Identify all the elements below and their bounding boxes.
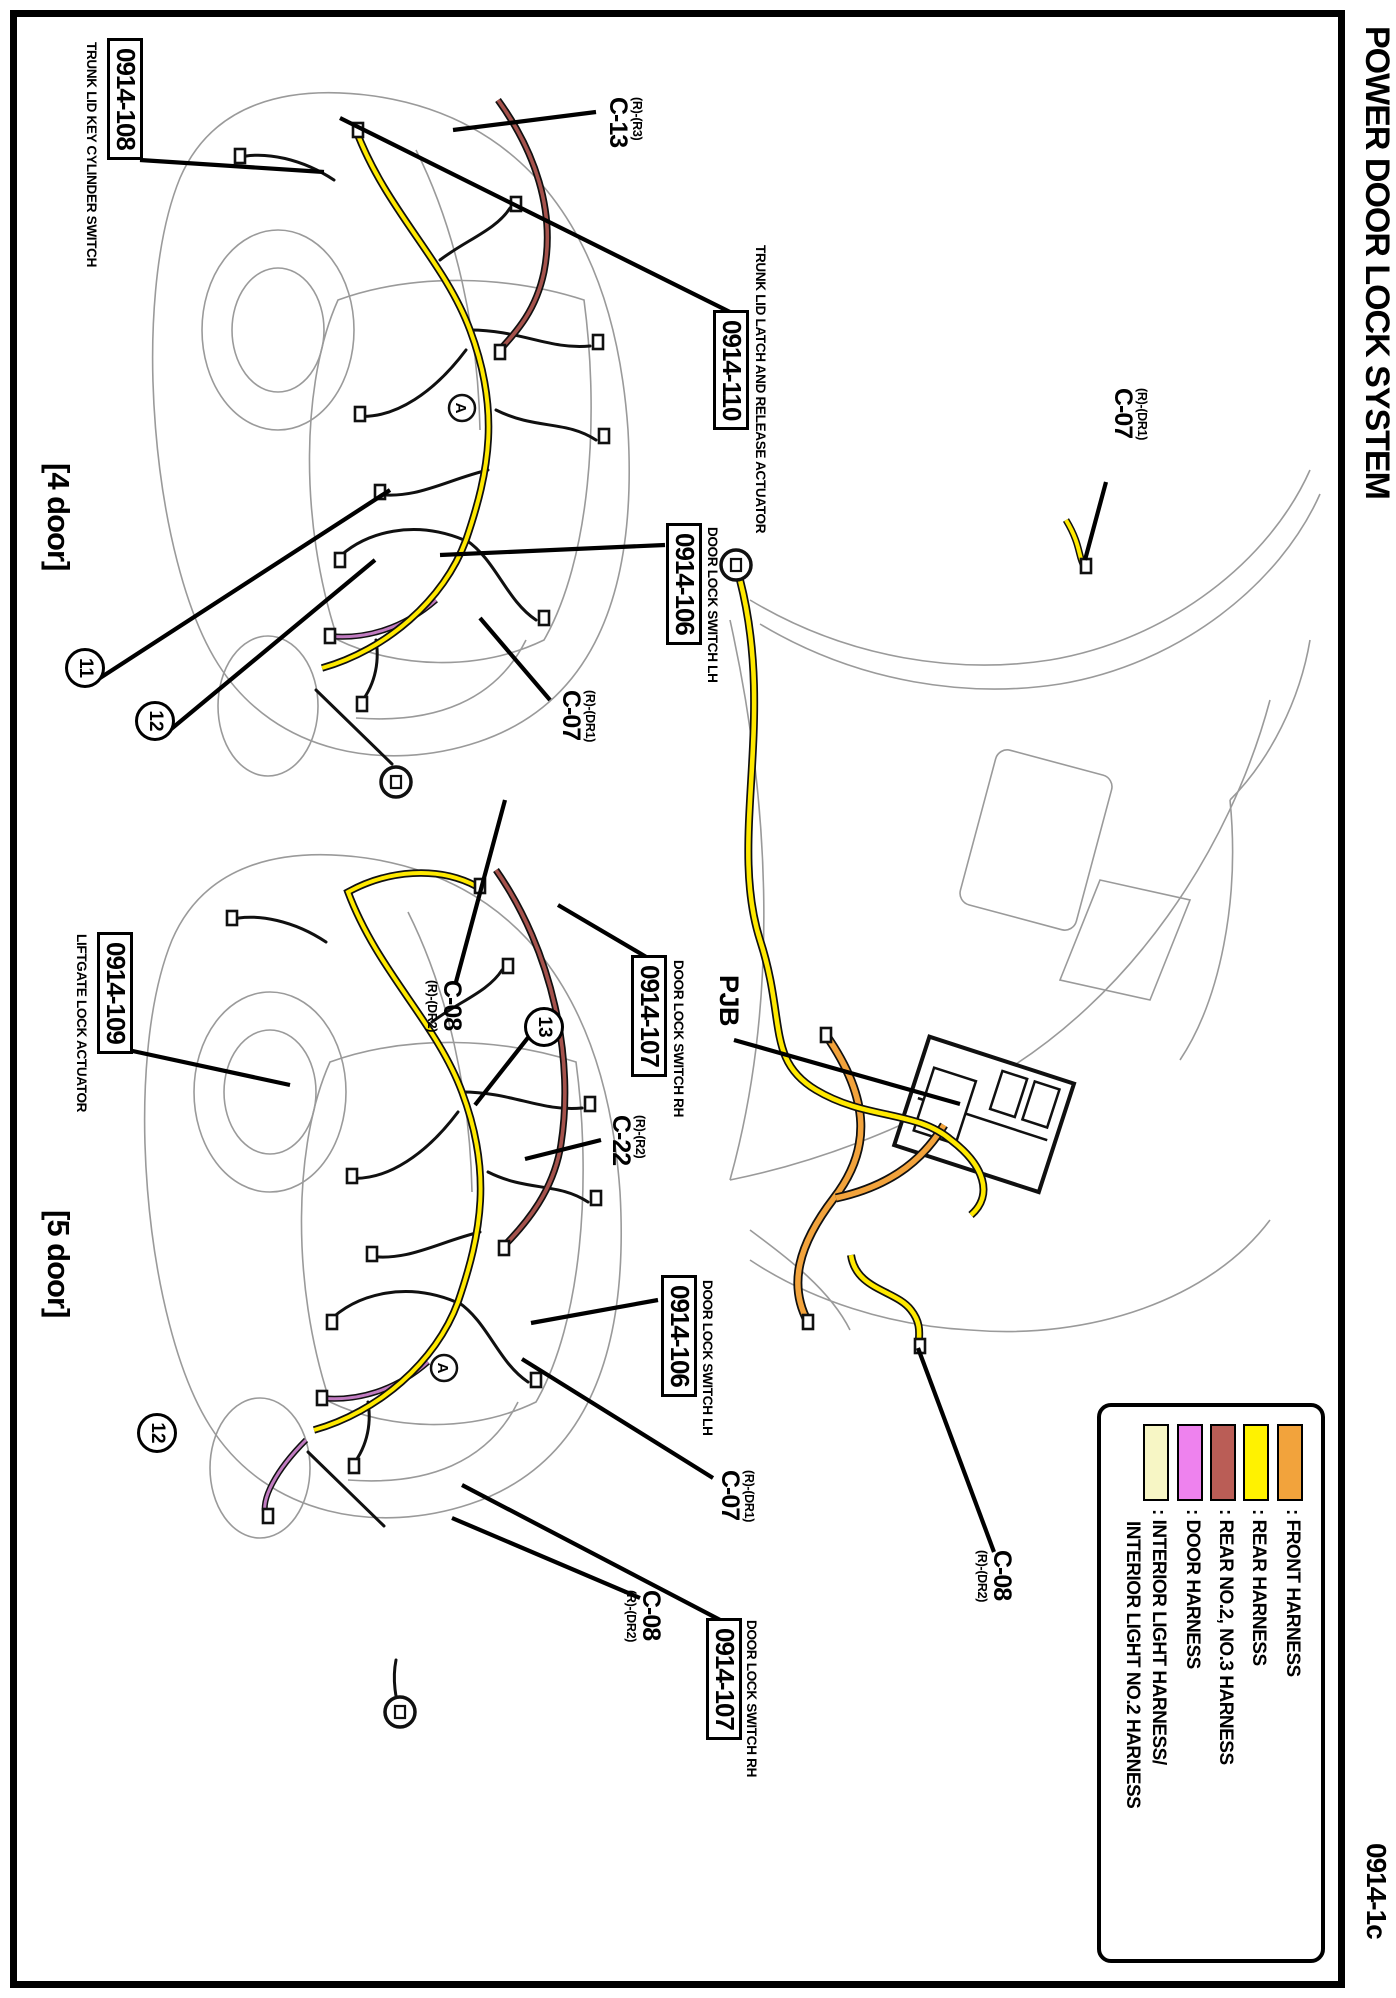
view-marker-a: A: [452, 403, 469, 414]
page-code: 0914-1c: [1360, 1843, 1392, 1939]
connector-prefix: (R)-(DR2): [976, 1550, 989, 1602]
circled-ref-12-4d: 12: [135, 701, 175, 741]
callout-desc-liftgate-lock: LIFTGATE LOCK ACTUATOR: [74, 934, 89, 1112]
legend: : FRONT HARNESS : REAR HARNESS : REAR NO…: [1097, 1403, 1325, 1963]
connector-prefix: (R)-(DR1): [584, 690, 597, 742]
car-5door-illustration: A: [145, 855, 622, 1727]
connector-label-c08-pjb: C-08 (R)-(DR2): [976, 1550, 1014, 1602]
legend-swatch-front: [1277, 1424, 1303, 1501]
callout-desc-door-lock-lh-5d: DOOR LOCK SWITCH LH: [700, 1280, 715, 1436]
connector-prefix: (R)-(DR1): [1136, 388, 1149, 440]
connector-code: C-07: [558, 690, 584, 742]
callout-desc-trunk-key-switch: TRUNK LID KEY CYLINDER SWITCH: [84, 42, 99, 267]
manual-page: POWER DOOR LOCK SYSTEM 0914-1c: [0, 0, 1396, 1998]
callout-box-trunk-latch: 0914-110: [713, 310, 749, 430]
legend-swatch-interior: [1143, 1424, 1169, 1501]
connector-prefix: (R)-(DR2): [625, 1590, 638, 1642]
connector-label-c07-5d: (R)-(DR1) C-07: [717, 1470, 755, 1522]
legend-swatch-door: [1177, 1424, 1203, 1501]
connector-label-c07-4d: (R)-(DR1) C-07: [558, 690, 596, 742]
connector-prefix: (R)-(R2): [634, 1115, 647, 1165]
legend-label-interior-line2: INTERIOR LIGHT NO.2 HARNESS: [1121, 1521, 1143, 1808]
circled-ref-12-5d: 12: [137, 1413, 177, 1453]
callout-box-trunk-key-switch: 0914-108: [107, 38, 143, 160]
callout-desc-door-lock-rh-4d: DOOR LOCK SWITCH RH: [671, 960, 686, 1117]
connector-label-c13: (R)-(R3) C-13: [605, 97, 643, 147]
legend-label-front: : FRONT HARNESS: [1281, 1509, 1303, 1677]
page-title: POWER DOOR LOCK SYSTEM: [1357, 26, 1396, 499]
connector-prefix: (R)-(R3): [631, 97, 644, 147]
connector-label-c22: (R)-(R2) C-22: [608, 1115, 646, 1165]
connector-code: C-07: [717, 1470, 743, 1522]
pjb-label: PJB: [713, 975, 744, 1026]
connector-code: C-08: [989, 1550, 1015, 1602]
rotated-landscape-page: POWER DOOR LOCK SYSTEM 0914-1c: [0, 0, 1396, 1998]
connector-prefix: (R)-(DR1): [743, 1470, 756, 1522]
legend-swatch-rear: [1243, 1424, 1269, 1501]
legend-swatch-rear23: [1210, 1424, 1236, 1501]
pjb-junction-box: [894, 1037, 1074, 1192]
connector-code: C-08: [439, 980, 465, 1032]
legend-label-rear: : REAR HARNESS: [1247, 1509, 1269, 1666]
connector-code: C-07: [1110, 388, 1136, 440]
connector-label-c08-4d: C-08 (R)-(DR2): [426, 980, 464, 1032]
callout-box-door-lock-lh-5d: 0914-106: [661, 1275, 697, 1397]
connector-label-c07-pjb: (R)-(DR1) C-07: [1110, 388, 1148, 440]
connector-label-c08-5d: C-08 (R)-(DR2): [625, 1590, 663, 1642]
callout-box-door-lock-rh-4d: 0914-107: [631, 955, 667, 1077]
legend-label-rear23: : REAR NO.2, NO.3 HARNESS: [1214, 1509, 1236, 1765]
callout-desc-door-lock-lh-4d: DOOR LOCK SWITCH LH: [705, 527, 720, 683]
callout-desc-trunk-latch: TRUNK LID LATCH AND RELEASE ACTUATOR: [753, 245, 768, 533]
car-interior-pjb-illustration: [721, 470, 1320, 1353]
callout-box-liftgate-lock: 0914-109: [97, 932, 133, 1054]
legend-label-interior: : INTERIOR LIGHT HARNESS/: [1147, 1509, 1169, 1765]
view-marker-a: A: [434, 1363, 451, 1374]
callout-desc-door-lock-rh-5d: DOOR LOCK SWITCH RH: [744, 1620, 759, 1777]
callout-box-door-lock-rh-5d: 0914-107: [706, 1618, 742, 1740]
callout-box-door-lock-lh-4d: 0914-106: [666, 523, 702, 645]
circled-ref-13: 13: [524, 1007, 564, 1047]
legend-label-door: : DOOR HARNESS: [1181, 1509, 1203, 1669]
connector-prefix: (R)-(DR2): [426, 980, 439, 1032]
connector-code: C-13: [605, 97, 631, 147]
connector-code: C-08: [638, 1590, 664, 1642]
connector-code: C-22: [608, 1115, 634, 1165]
circled-ref-11: 11: [65, 648, 105, 688]
